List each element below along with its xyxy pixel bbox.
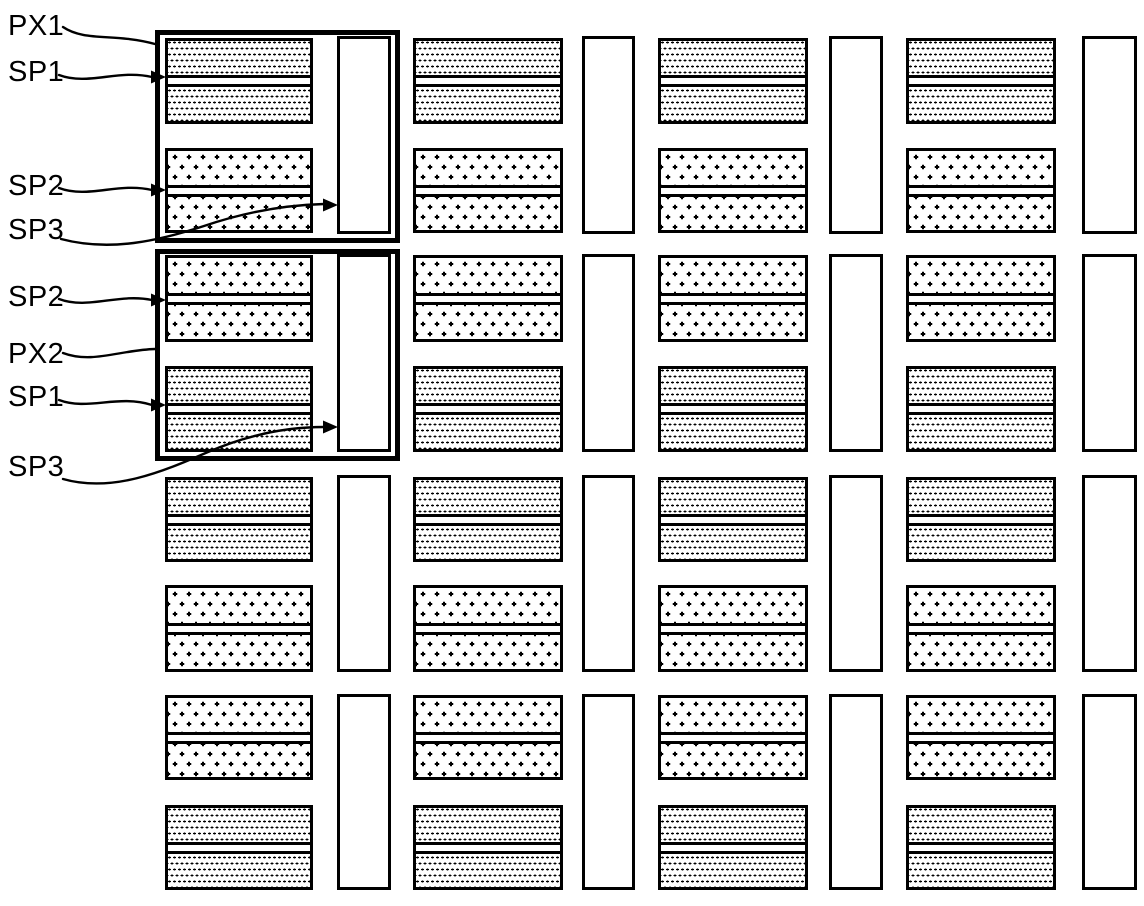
sp2-subpixel-block (658, 255, 808, 342)
label-sp2-bottom: SP2 (8, 283, 64, 312)
subpixel-slit (661, 514, 805, 526)
label-sp1-top: SP1 (8, 58, 64, 87)
sp1-subpixel-block (906, 366, 1056, 452)
sp2-subpixel-block (906, 148, 1056, 233)
subpixel-slit (661, 623, 805, 635)
sp3-spacer-rect (829, 36, 883, 234)
sp2-subpixel-block (906, 585, 1056, 672)
sp2-subpixel-block (413, 695, 563, 780)
sp2-subpixel-block (906, 255, 1056, 342)
sp2-subpixel-block (658, 148, 808, 233)
sp1-subpixel-block (165, 477, 313, 562)
subpixel-slit (661, 403, 805, 415)
sp1-subpixel-block (906, 38, 1056, 124)
leader-line-sp1-top (59, 75, 152, 79)
sp1-subpixel-block (658, 366, 808, 452)
sp3-spacer-rect (829, 694, 883, 890)
subpixel-slit (661, 293, 805, 305)
sp3-spacer-rect (582, 254, 635, 452)
sp2-subpixel-block (658, 585, 808, 672)
sp2-subpixel-block (165, 695, 313, 780)
pixel-outline-px2 (155, 249, 400, 461)
label-sp3-bottom: SP3 (8, 453, 64, 482)
sp1-subpixel-block (413, 805, 563, 890)
subpixel-slit (168, 842, 310, 854)
subpixel-slit (416, 623, 560, 635)
sp3-spacer-rect (1082, 475, 1137, 672)
subpixel-slit (909, 185, 1053, 197)
subpixel-slit (416, 75, 560, 87)
leader-line-px1 (63, 27, 155, 44)
label-sp2-top: SP2 (8, 172, 64, 201)
label-px2: PX2 (8, 340, 64, 369)
subpixel-slit (416, 185, 560, 197)
subpixel-slit (661, 75, 805, 87)
subpixel-slit (909, 732, 1053, 744)
patent-pixel-layout-figure: PX1 SP1 SP2 SP3 SP2 PX2 SP1 SP3 (0, 0, 1144, 906)
sp2-subpixel-block (413, 585, 563, 672)
subpixel-slit (416, 403, 560, 415)
subpixel-slit (661, 185, 805, 197)
sp3-spacer-rect (337, 475, 391, 672)
subpixel-slit (416, 514, 560, 526)
subpixel-slit (909, 514, 1053, 526)
sp3-spacer-rect (582, 694, 635, 890)
sp3-spacer-rect (582, 475, 635, 672)
sp1-subpixel-block (906, 805, 1056, 890)
sp3-spacer-rect (1082, 254, 1137, 452)
leader-line-sp1-bottom (59, 400, 152, 405)
sp1-subpixel-block (658, 38, 808, 124)
sp2-subpixel-block (413, 148, 563, 233)
subpixel-slit (909, 293, 1053, 305)
sp1-subpixel-block (165, 805, 313, 890)
subpixel-slit (909, 623, 1053, 635)
pixel-outline-px1 (155, 30, 400, 243)
sp2-subpixel-block (413, 255, 563, 342)
sp3-spacer-rect (337, 694, 391, 890)
sp3-spacer-rect (829, 475, 883, 672)
sp3-spacer-rect (1082, 694, 1137, 890)
subpixel-slit (909, 403, 1053, 415)
leader-line-sp2-bottom (59, 298, 152, 303)
leader-line-sp2-top (59, 188, 152, 192)
sp3-spacer-rect (1082, 36, 1137, 234)
subpixel-slit (661, 842, 805, 854)
label-sp1-bottom: SP1 (8, 383, 64, 412)
label-px1: PX1 (8, 12, 64, 41)
sp3-spacer-rect (829, 254, 883, 452)
subpixel-slit (909, 75, 1053, 87)
sp3-spacer-rect (582, 36, 635, 234)
subpixel-slit (168, 623, 310, 635)
subpixel-slit (416, 293, 560, 305)
sp2-subpixel-block (658, 695, 808, 780)
subpixel-slit (661, 732, 805, 744)
sp1-subpixel-block (413, 477, 563, 562)
sp1-subpixel-block (413, 38, 563, 124)
subpixel-slit (416, 732, 560, 744)
subpixel-slit (168, 732, 310, 744)
subpixel-slit (168, 514, 310, 526)
sp2-subpixel-block (165, 585, 313, 672)
leader-line-px2 (63, 349, 155, 357)
sp1-subpixel-block (413, 366, 563, 452)
subpixel-slit (416, 842, 560, 854)
sp2-subpixel-block (906, 695, 1056, 780)
sp1-subpixel-block (906, 477, 1056, 562)
sp1-subpixel-block (658, 805, 808, 890)
label-sp3-top: SP3 (8, 216, 64, 245)
subpixel-slit (909, 842, 1053, 854)
sp1-subpixel-block (658, 477, 808, 562)
